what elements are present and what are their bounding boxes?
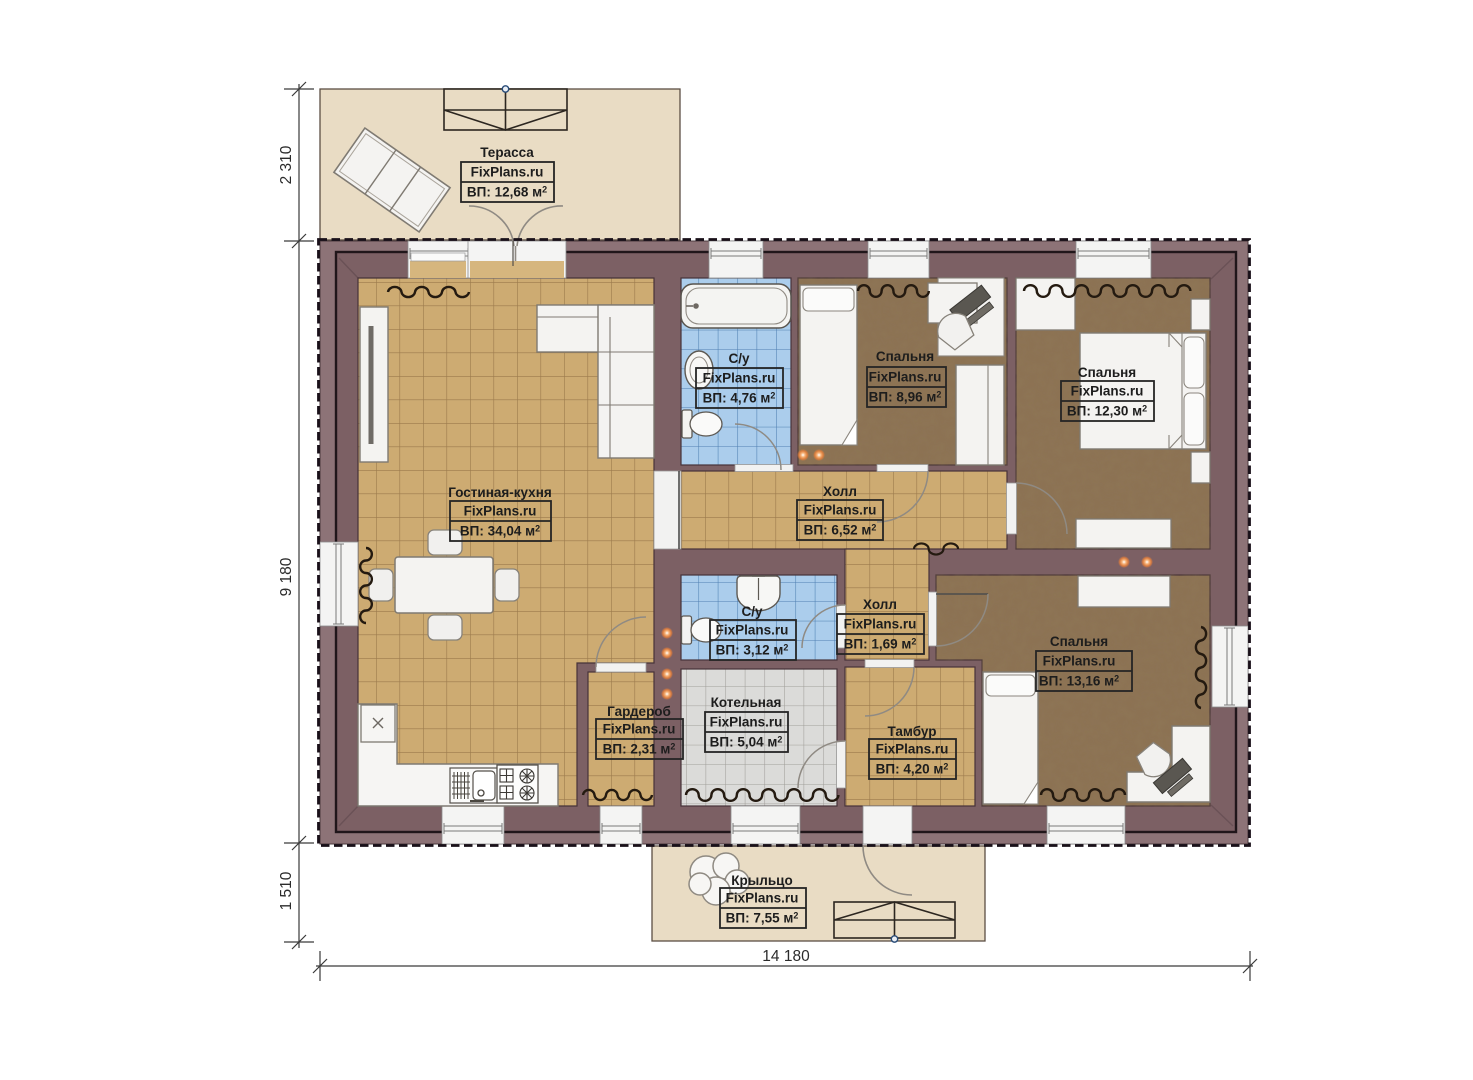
svg-text:FixPlans.ru: FixPlans.ru xyxy=(876,742,949,757)
svg-text:ВП: 3,12 м2: ВП: 3,12 м2 xyxy=(716,643,789,658)
svg-text:ВП: 1,69 м2: ВП: 1,69 м2 xyxy=(844,637,917,652)
svg-text:FixPlans.ru: FixPlans.ru xyxy=(716,623,789,638)
svg-text:Спальня: Спальня xyxy=(1050,634,1108,649)
svg-text:FixPlans.ru: FixPlans.ru xyxy=(1043,654,1116,669)
svg-text:Спальня: Спальня xyxy=(1078,365,1136,380)
svg-text:ВП: 7,55 м2: ВП: 7,55 м2 xyxy=(726,911,799,926)
svg-text:Тамбур: Тамбур xyxy=(888,724,937,739)
svg-text:ВП: 6,52 м2: ВП: 6,52 м2 xyxy=(804,523,877,538)
svg-text:ВП: 12,68 м2: ВП: 12,68 м2 xyxy=(467,185,547,200)
svg-text:ВП: 2,31 м2: ВП: 2,31 м2 xyxy=(603,742,676,757)
svg-text:Крыльцо: Крыльцо xyxy=(731,873,792,888)
svg-text:FixPlans.ru: FixPlans.ru xyxy=(804,503,877,518)
svg-text:ВП: 4,20 м2: ВП: 4,20 м2 xyxy=(876,762,949,777)
svg-text:FixPlans.ru: FixPlans.ru xyxy=(869,370,942,385)
svg-text:1 510: 1 510 xyxy=(278,871,295,910)
svg-text:С/у: С/у xyxy=(741,604,763,619)
svg-text:FixPlans.ru: FixPlans.ru xyxy=(710,715,783,730)
svg-text:ВП: 34,04 м2: ВП: 34,04 м2 xyxy=(460,524,540,539)
svg-text:FixPlans.ru: FixPlans.ru xyxy=(603,722,676,737)
svg-text:9 180: 9 180 xyxy=(278,557,295,596)
svg-text:2 310: 2 310 xyxy=(278,145,295,184)
svg-text:Терасса: Терасса xyxy=(480,145,534,160)
svg-text:ВП: 5,04 м2: ВП: 5,04 м2 xyxy=(710,735,783,750)
svg-text:С/у: С/у xyxy=(728,351,750,366)
svg-text:ВП: 12,30 м2: ВП: 12,30 м2 xyxy=(1067,404,1147,419)
svg-text:ВП: 4,76 м2: ВП: 4,76 м2 xyxy=(703,391,776,406)
svg-text:FixPlans.ru: FixPlans.ru xyxy=(471,165,544,180)
svg-text:Холл: Холл xyxy=(863,597,897,612)
svg-text:FixPlans.ru: FixPlans.ru xyxy=(464,504,537,519)
svg-text:Котельная: Котельная xyxy=(711,695,782,710)
svg-text:FixPlans.ru: FixPlans.ru xyxy=(1071,384,1144,399)
svg-text:ВП: 8,96 м2: ВП: 8,96 м2 xyxy=(869,390,942,405)
svg-text:Гостиная-кухня: Гостиная-кухня xyxy=(448,485,551,500)
svg-text:ВП: 13,16 м2: ВП: 13,16 м2 xyxy=(1039,674,1119,689)
svg-text:Холл: Холл xyxy=(823,484,857,499)
svg-text:Гардероб: Гардероб xyxy=(607,704,671,719)
svg-text:FixPlans.ru: FixPlans.ru xyxy=(726,891,799,906)
svg-text:14 180: 14 180 xyxy=(762,948,810,965)
svg-text:FixPlans.ru: FixPlans.ru xyxy=(844,617,917,632)
svg-text:FixPlans.ru: FixPlans.ru xyxy=(703,371,776,386)
svg-text:Спальня: Спальня xyxy=(876,349,934,364)
